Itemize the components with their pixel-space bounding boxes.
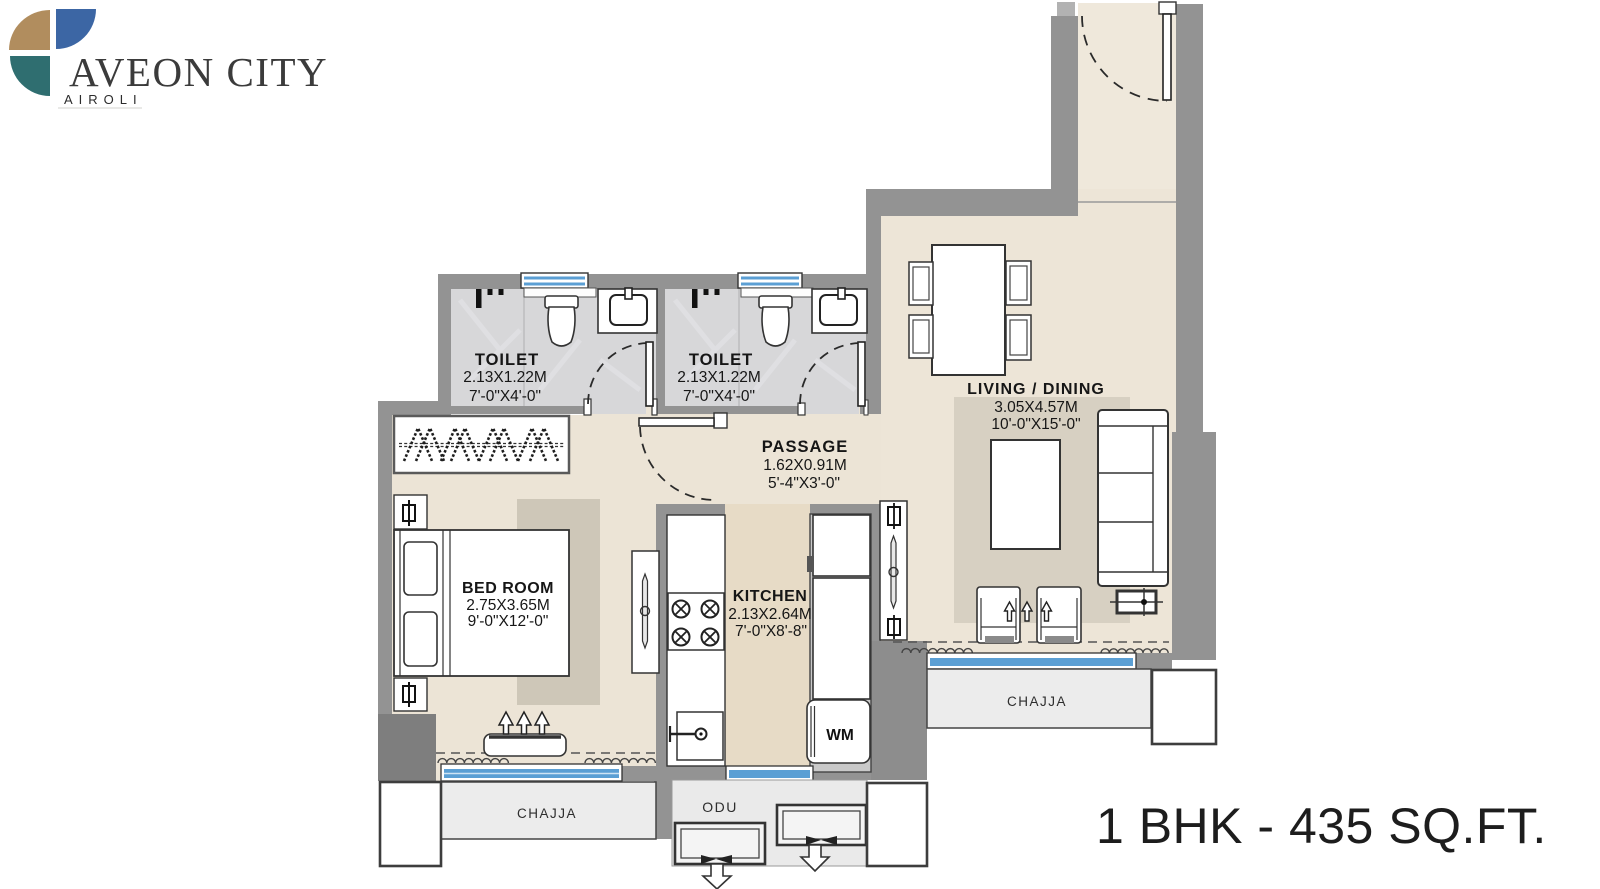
svg-text:1.62X0.91M: 1.62X0.91M bbox=[763, 457, 847, 474]
svg-text:TOILET: TOILET bbox=[689, 351, 753, 369]
svg-text:ODU: ODU bbox=[702, 799, 738, 815]
svg-text:10'-0"X15'-0": 10'-0"X15'-0" bbox=[991, 416, 1080, 433]
svg-text:2.13X1.22M: 2.13X1.22M bbox=[677, 369, 761, 386]
svg-text:3.05X4.57M: 3.05X4.57M bbox=[994, 399, 1078, 416]
svg-text:WM: WM bbox=[826, 727, 854, 744]
svg-text:2.13X2.64M: 2.13X2.64M bbox=[728, 606, 812, 623]
svg-text:KITCHEN: KITCHEN bbox=[733, 588, 808, 605]
svg-text:LIVING / DINING: LIVING / DINING bbox=[967, 381, 1105, 398]
svg-text:CHAJJA: CHAJJA bbox=[517, 806, 577, 821]
svg-text:2.13X1.22M: 2.13X1.22M bbox=[463, 369, 547, 386]
svg-text:7'-0"X8'-8": 7'-0"X8'-8" bbox=[735, 623, 807, 640]
svg-text:TOILET: TOILET bbox=[475, 351, 539, 369]
svg-text:7'-0"X4'-0": 7'-0"X4'-0" bbox=[469, 388, 541, 405]
svg-text:2.75X3.65M: 2.75X3.65M bbox=[466, 597, 550, 614]
svg-text:7'-0"X4'-0": 7'-0"X4'-0" bbox=[683, 388, 755, 405]
svg-text:5'-4"X3'-0": 5'-4"X3'-0" bbox=[768, 475, 840, 492]
svg-text:PASSAGE: PASSAGE bbox=[762, 438, 848, 456]
svg-text:9'-0"X12'-0": 9'-0"X12'-0" bbox=[468, 613, 549, 630]
svg-text:BED ROOM: BED ROOM bbox=[462, 580, 554, 597]
svg-text:CHAJJA: CHAJJA bbox=[1007, 694, 1067, 709]
